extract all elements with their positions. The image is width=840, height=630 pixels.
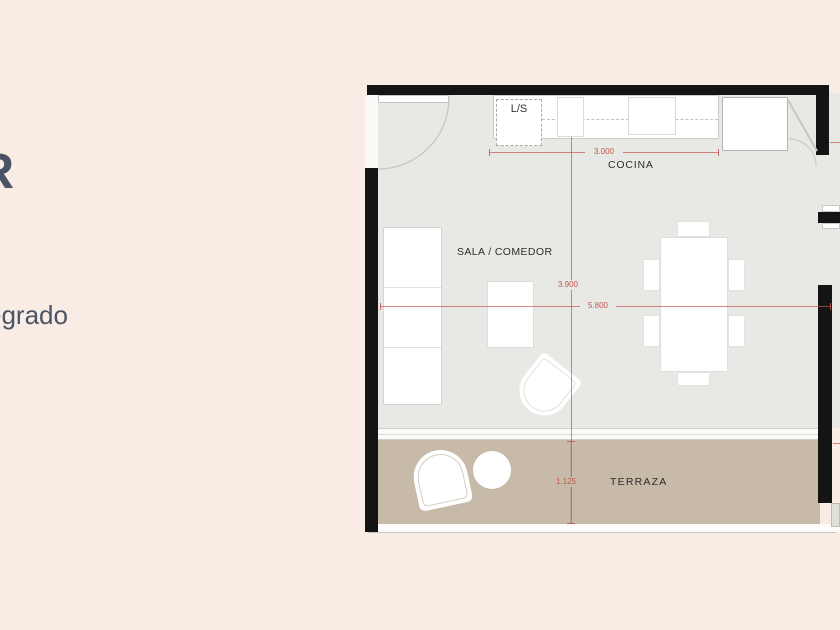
dining-chair	[728, 259, 745, 291]
left-door-opening	[365, 95, 378, 168]
room-label-terraza: TERRAZA	[610, 476, 667, 489]
cooktop-unit	[628, 97, 676, 135]
dim-label-sala-depth: 3.900	[553, 280, 583, 290]
dim-tick	[567, 523, 575, 524]
dim-label-terrace-depth: 1.125	[550, 477, 582, 487]
dim-line-vertical	[571, 137, 572, 524]
sofa-divider	[384, 347, 441, 348]
floorplan: L/S 3.000 3.900 5.800 1.125 COCINA SALA …	[0, 0, 840, 630]
room-label-sala-comedor: SALA / COMEDOR	[457, 246, 552, 259]
page-background: { "fragments": { "title": "R", "subtitle…	[0, 0, 840, 630]
dining-chair	[728, 315, 745, 347]
dim-tick	[718, 149, 719, 156]
sofa-divider	[384, 287, 441, 288]
dim-tick	[830, 303, 831, 310]
laundry-label: L/S	[496, 103, 542, 115]
coffee-table	[487, 281, 534, 348]
wall-right-upper	[816, 95, 829, 155]
dining-chair	[677, 372, 710, 386]
dim-label-kitchen-width: 3.000	[585, 147, 623, 157]
wall-right-stub	[818, 212, 840, 223]
wall-right-main	[818, 285, 832, 503]
terrace-round-table	[473, 451, 511, 489]
edge-fragment-red-line	[830, 142, 840, 143]
hall-jamb-upper	[822, 205, 840, 212]
bottom-railing-strip	[365, 524, 840, 532]
bottom-railing-line	[368, 532, 836, 533]
counter-cabinet-small	[557, 97, 584, 137]
left-door-leaf	[378, 95, 449, 103]
dim-tick	[380, 303, 381, 310]
edge-fragment-red-line	[833, 443, 840, 444]
sliding-door-track-line	[378, 434, 820, 435]
wall-left	[365, 168, 378, 532]
room-label-cocina: COCINA	[608, 159, 654, 172]
dining-chair	[677, 221, 710, 237]
dining-chair	[643, 259, 660, 291]
dim-label-sala-width: 5.800	[580, 301, 616, 311]
wall-top	[367, 85, 829, 95]
dim-tick	[567, 441, 575, 442]
hall-jamb-lower	[822, 223, 840, 229]
dim-tick	[489, 149, 490, 156]
edge-fragment-planter	[831, 503, 840, 527]
dining-chair	[643, 315, 660, 347]
dining-table	[660, 237, 728, 372]
sofa	[383, 227, 442, 405]
refrigerator	[722, 97, 788, 151]
sliding-door-band	[378, 428, 820, 440]
